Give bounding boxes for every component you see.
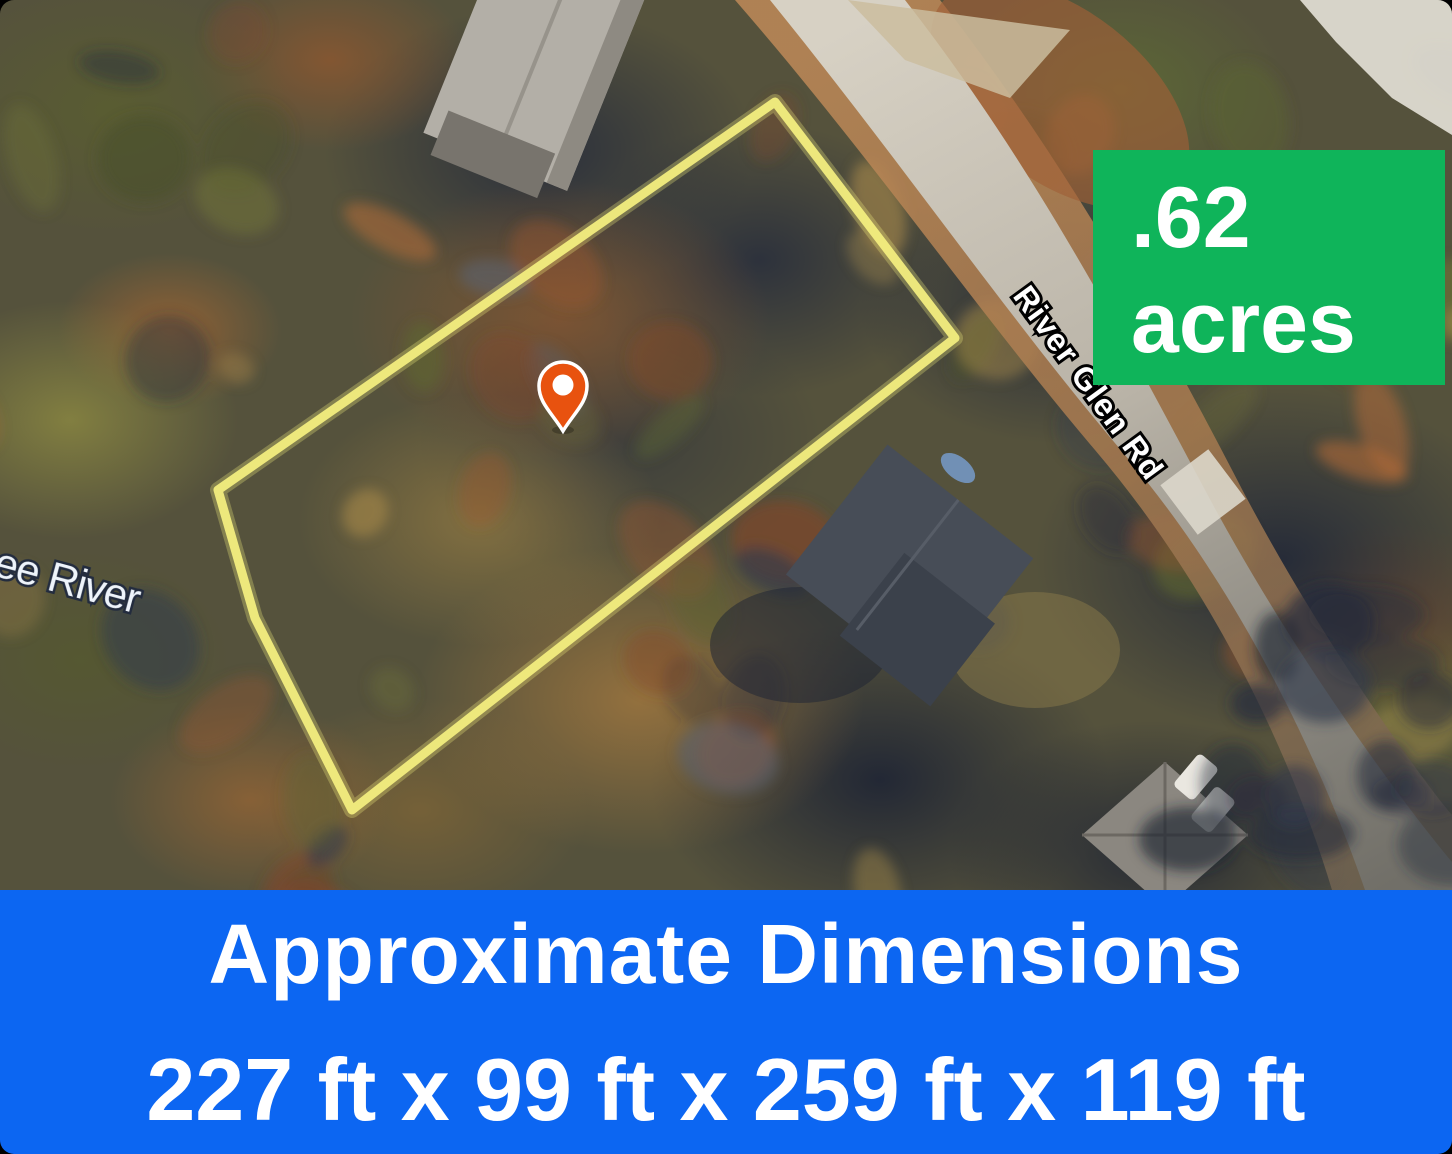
property-boundary-glow <box>218 102 955 810</box>
acreage-badge: .62 acres <box>1093 150 1445 385</box>
pool <box>935 447 980 489</box>
acreage-unit: acres <box>1131 271 1445 376</box>
satellite-map: ee River River Glen Rd <box>0 0 1452 890</box>
dimensions-title: Approximate Dimensions <box>209 912 1244 996</box>
driveway <box>1300 0 1452 135</box>
image-frame: ee River River Glen Rd .62 acres App <box>0 0 1452 1154</box>
acreage-value: .62 <box>1131 166 1445 271</box>
dimensions-value: 227 ft x 99 ft x 259 ft x 119 ft <box>146 1046 1305 1134</box>
image-content: ee River River Glen Rd .62 acres App <box>0 0 1452 1154</box>
house-roof <box>417 0 654 208</box>
dimensions-banner: Approximate Dimensions 227 ft x 99 ft x … <box>0 890 1452 1154</box>
map-overlay: ee River River Glen Rd <box>0 0 1452 890</box>
property-boundary <box>218 102 955 810</box>
